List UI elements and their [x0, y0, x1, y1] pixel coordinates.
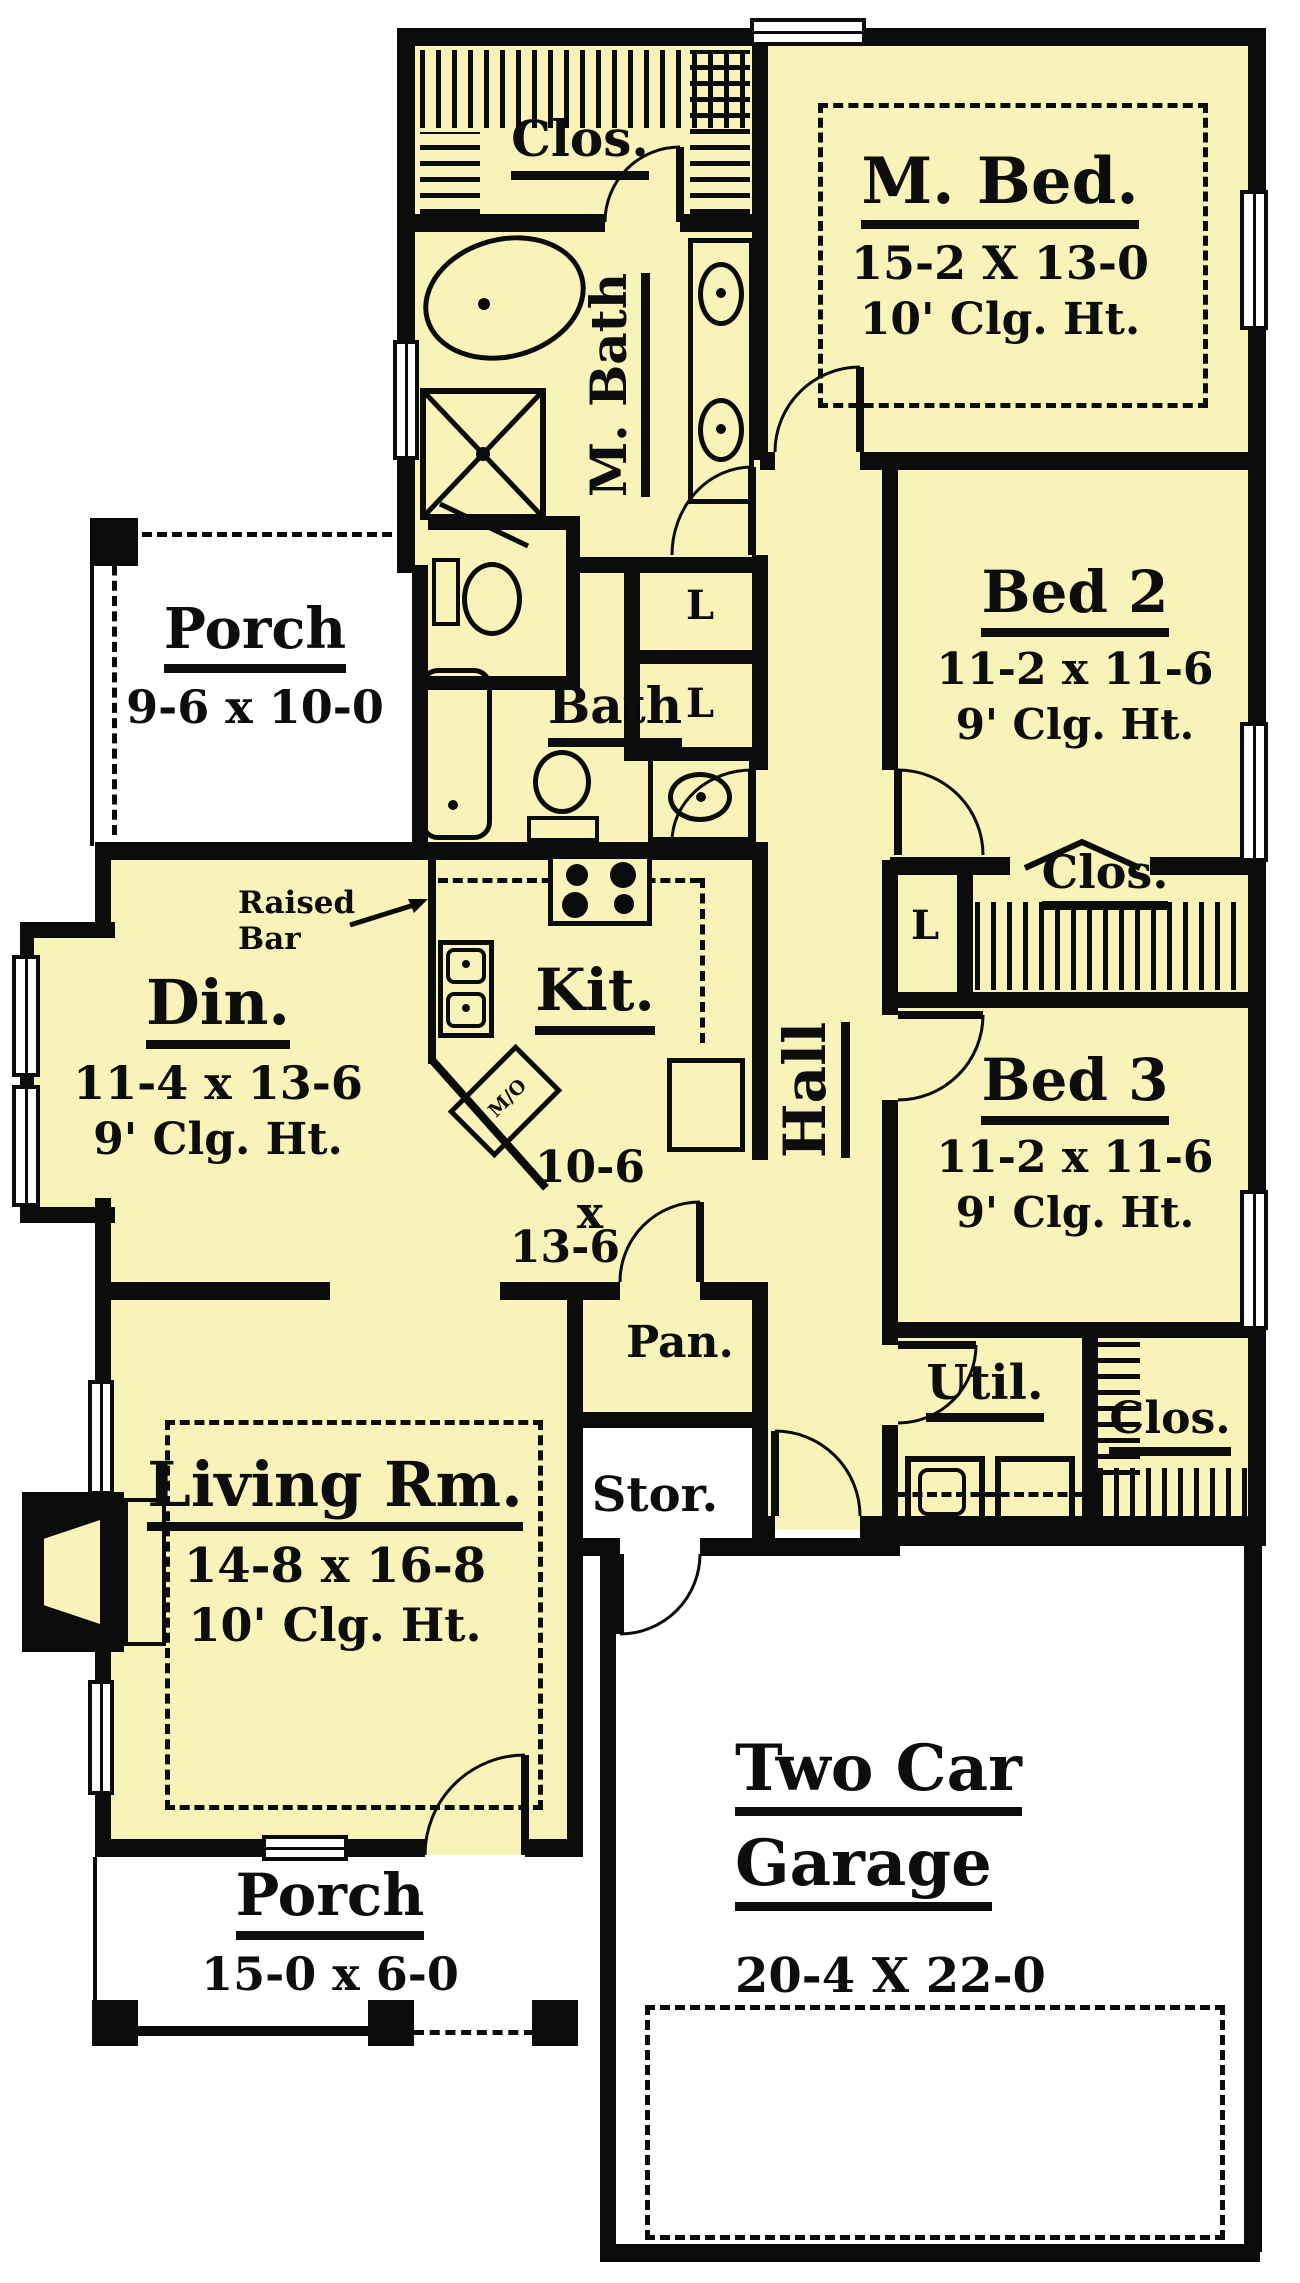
wall-segment	[890, 992, 1260, 1008]
wall-segment	[580, 557, 760, 573]
room-label-pantry: Pan.	[610, 1320, 750, 1366]
room-label-side-porch: Porch 9-6 x 10-0	[95, 600, 415, 731]
wall-segment	[95, 1282, 330, 1300]
room-label-bed2: Bed 2 11-2 x 11-6 9' Clg. Ht.	[905, 562, 1245, 747]
wall-segment	[405, 214, 605, 232]
room-label-front-porch: Porch 15-0 x 6-0	[180, 1865, 480, 1998]
front-door-swing	[425, 1755, 525, 1855]
room-label-dining: Din. 11-4 x 13-6 9' Clg. Ht.	[38, 970, 398, 1164]
porch-edge-line	[90, 520, 94, 846]
room-label-kitchen: Kit.	[515, 960, 675, 1035]
porch-post	[92, 2000, 138, 2046]
raised-bar-counter	[428, 852, 436, 1064]
porch-rail-dashed	[414, 2030, 534, 2035]
burner	[610, 862, 636, 888]
label-linen-closet: L	[895, 905, 955, 947]
wall-segment	[760, 452, 775, 470]
sink-drain	[716, 424, 726, 434]
porch-edge-line	[93, 1857, 97, 2027]
room-label-bed3: Bed 3 11-2 x 11-6 9' Clg. Ht.	[905, 1050, 1245, 1235]
wall-segment	[1244, 1546, 1262, 2252]
window	[12, 955, 40, 1077]
window	[12, 1085, 40, 1207]
window	[262, 1835, 348, 1861]
room-label-garage: Two Car Garage 20-4 X 22-0	[735, 1735, 1095, 2002]
window	[88, 1380, 114, 1495]
wall-segment	[752, 28, 768, 460]
room-label-living: Living Rm. 14-8 x 16-8 10' Clg. Ht.	[120, 1452, 550, 1650]
wall-segment	[760, 1516, 775, 1546]
window	[393, 340, 419, 460]
sink-drain	[462, 960, 470, 968]
tub-drain	[448, 800, 458, 810]
bath-door-swing	[672, 770, 752, 842]
raised-bar-arrow	[350, 893, 430, 929]
label-linen-closet: L	[670, 683, 730, 725]
porch-post	[532, 2000, 578, 2046]
master-bed-door-swing	[775, 367, 860, 452]
kitchen-dims: 13-6	[505, 1225, 625, 1271]
room-label-utility-closet: Clos.	[1090, 1396, 1250, 1456]
wall-segment	[348, 1839, 425, 1857]
wall-segment	[860, 1516, 890, 1546]
wall-segment	[640, 650, 752, 664]
wall-segment	[575, 1412, 760, 1428]
master-bath-door-swing	[672, 467, 752, 555]
wall-segment	[600, 2244, 1260, 2262]
wall-segment	[882, 1100, 898, 1345]
floor-plan: M/O Clos. M. Bed. 15-2 X 13-0 10' Clg. H…	[0, 0, 1300, 2283]
tub-drain	[478, 298, 490, 310]
wall-segment	[680, 214, 760, 232]
wall-segment	[700, 1282, 760, 1300]
toilet-room-door	[440, 500, 530, 548]
wall-segment	[860, 452, 1260, 470]
wall-segment	[752, 565, 768, 770]
wall-segment	[882, 460, 898, 770]
closet-shelf-hatch	[690, 50, 750, 214]
wall-segment	[890, 857, 1010, 875]
kitchen-cabinet-dashed	[700, 878, 705, 1043]
refrigerator	[667, 1058, 745, 1152]
master-toilet-tank	[432, 558, 460, 626]
wall-segment	[95, 1839, 262, 1857]
wall-segment	[600, 1540, 616, 2260]
garage-door-dashed	[645, 2005, 1225, 2240]
wall-segment	[566, 516, 580, 690]
closet-shelf-hatch	[975, 902, 1247, 990]
burner	[614, 894, 634, 914]
bath-toilet-bowl	[533, 750, 591, 814]
wall-segment	[957, 865, 973, 1000]
room-label-hall: Hall	[775, 980, 845, 1200]
window	[750, 18, 866, 46]
raised-bar-note: Raised Bar	[238, 886, 355, 957]
wall-segment	[567, 1282, 583, 1855]
burner	[566, 864, 588, 886]
sink-drain	[462, 1004, 470, 1012]
porch-rail	[95, 2026, 375, 2036]
room-label-master-bed: M. Bed. 15-2 X 13-0 10' Clg. Ht.	[800, 148, 1200, 344]
range	[548, 854, 652, 926]
burner	[562, 892, 588, 918]
washer-dryer-line	[898, 1492, 1082, 1497]
room-label-utility: Util.	[900, 1358, 1070, 1422]
wall-segment	[890, 1322, 1260, 1338]
room-label-bed2-closet: Clos.	[1000, 848, 1210, 910]
side-porch-edge-dashed	[112, 532, 407, 537]
porch-post	[90, 518, 138, 566]
closet-shelf-hatch	[420, 132, 480, 214]
room-label-master-bath: M. Bath	[583, 245, 653, 525]
sink-drain	[716, 288, 726, 298]
bath-tub	[420, 668, 492, 840]
wall-segment	[397, 28, 415, 573]
window	[1240, 190, 1268, 330]
wall-segment	[95, 842, 111, 938]
bath-toilet-tank	[527, 816, 599, 842]
wall-segment	[500, 1282, 620, 1300]
master-toilet-bowl	[462, 562, 522, 636]
porch-post	[368, 2000, 414, 2046]
garage-entry-door-swing	[775, 1431, 860, 1516]
window	[88, 1680, 114, 1795]
label-linen-closet: L	[670, 585, 730, 627]
bed2-door-swing	[898, 770, 983, 855]
room-label-storage: Stor.	[570, 1470, 740, 1520]
wall-segment	[752, 842, 768, 1160]
storage-door-swing	[620, 1554, 700, 1634]
closet-shelf-hatch	[1098, 1468, 1248, 1520]
room-label-master-closet: Clos.	[480, 113, 680, 180]
